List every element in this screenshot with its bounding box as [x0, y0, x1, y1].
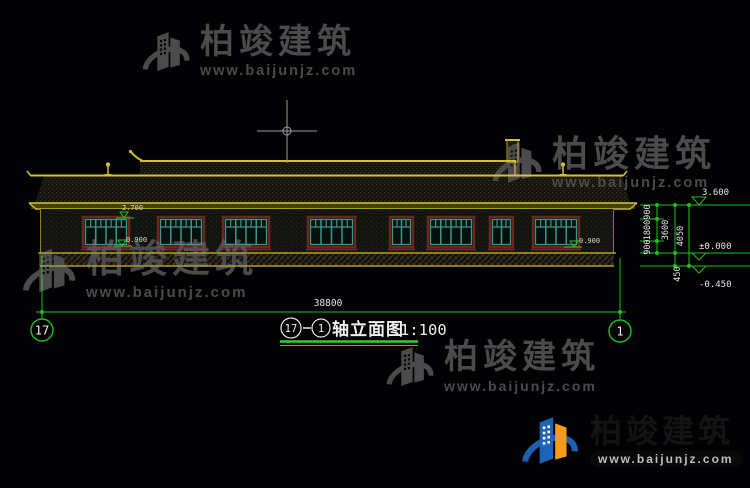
brand-url: www.baijunjz.com [590, 451, 742, 467]
brand-logo-icon [140, 24, 192, 80]
title-axis-left: 17 [285, 323, 298, 335]
title-label: 轴立面图 [332, 319, 404, 339]
ridge-tip-left [27, 171, 31, 176]
eave-curl-tip [129, 150, 132, 153]
dim-4050: 4050 [676, 226, 686, 246]
brand-url: www.baijunjz.com [552, 175, 716, 191]
axis-label-left: 17 [35, 324, 49, 338]
dim-900-bottom: 900 [643, 239, 653, 254]
axis-label-right: 1 [616, 325, 623, 339]
dim-900-top: 900 [643, 204, 653, 219]
upper-roof-face [140, 162, 515, 175]
window [488, 217, 515, 250]
watermark-text: 柏竣建筑 www.baijunjz.com [552, 135, 716, 192]
dim-450: 450 [673, 266, 683, 281]
cad-viewport: 2.700 0.900 0.900 [0, 0, 750, 488]
window [426, 217, 476, 250]
dim-overall-width: 38800 [314, 298, 343, 309]
level-text-sill-right: 0.900 [579, 237, 600, 245]
window [388, 217, 415, 250]
title-scale: 1:100 [400, 321, 447, 339]
brand-name: 柏竣建筑 [552, 135, 716, 173]
brand-logo-icon [384, 338, 436, 396]
brand-name: 柏竣建筑 [444, 340, 600, 376]
axis-bubble-left: 17 [31, 319, 53, 341]
eave-upturn-curl [131, 152, 143, 161]
watermark-text: 柏竣建筑 www.baijunjz.com [86, 241, 258, 301]
eave-band [29, 203, 637, 209]
brand-url: www.baijunjz.com [200, 63, 357, 79]
vertical-dimensions [640, 203, 750, 268]
crosshair-cursor[interactable] [257, 100, 317, 163]
brand-logo-icon [490, 134, 544, 192]
watermark-text: 柏竣建筑 www.baijunjz.com [590, 415, 742, 467]
brand-url: www.baijunjz.com [444, 378, 600, 394]
roof-finial-left [105, 162, 112, 175]
brand-logo-icon [20, 241, 78, 301]
dim-1800: 1800 [643, 220, 653, 240]
window [531, 217, 581, 250]
watermark-bottom-left: 柏竣建筑 www.baijunjz.com [20, 241, 258, 301]
watermark-text: 柏竣建筑 www.baijunjz.com [200, 25, 357, 80]
brand-name: 柏竣建筑 [200, 25, 357, 61]
watermark-right: 柏竣建筑 www.baijunjz.com [490, 134, 716, 192]
watermark-text: 柏竣建筑 www.baijunjz.com [444, 340, 600, 395]
dim-3600: 3600 [661, 220, 671, 240]
axis-bubble-right: 1 [609, 320, 631, 342]
brand-name: 柏竣建筑 [86, 241, 258, 281]
brand-url: www.baijunjz.com [86, 284, 258, 301]
window [306, 217, 357, 250]
brand-logo-color-icon [518, 410, 582, 472]
level-text-minus: -0.450 [699, 280, 732, 290]
title-axis-right: 1 [318, 323, 324, 335]
level-text-window-head: 2.700 [122, 204, 143, 212]
vertical-dimension-texts: 900 1800 900 3600 4050 450 [643, 204, 686, 281]
watermark-bottom-right-colored: 柏竣建筑 www.baijunjz.com [518, 410, 742, 472]
brand-name: 柏竣建筑 [590, 415, 742, 449]
watermark-bottom-center: 柏竣建筑 www.baijunjz.com [384, 338, 600, 396]
level-symbols: 3.600 ±0.000 -0.450 [692, 188, 732, 290]
level-text-zero: ±0.000 [699, 242, 732, 252]
watermark-top: 柏竣建筑 www.baijunjz.com [140, 24, 357, 80]
